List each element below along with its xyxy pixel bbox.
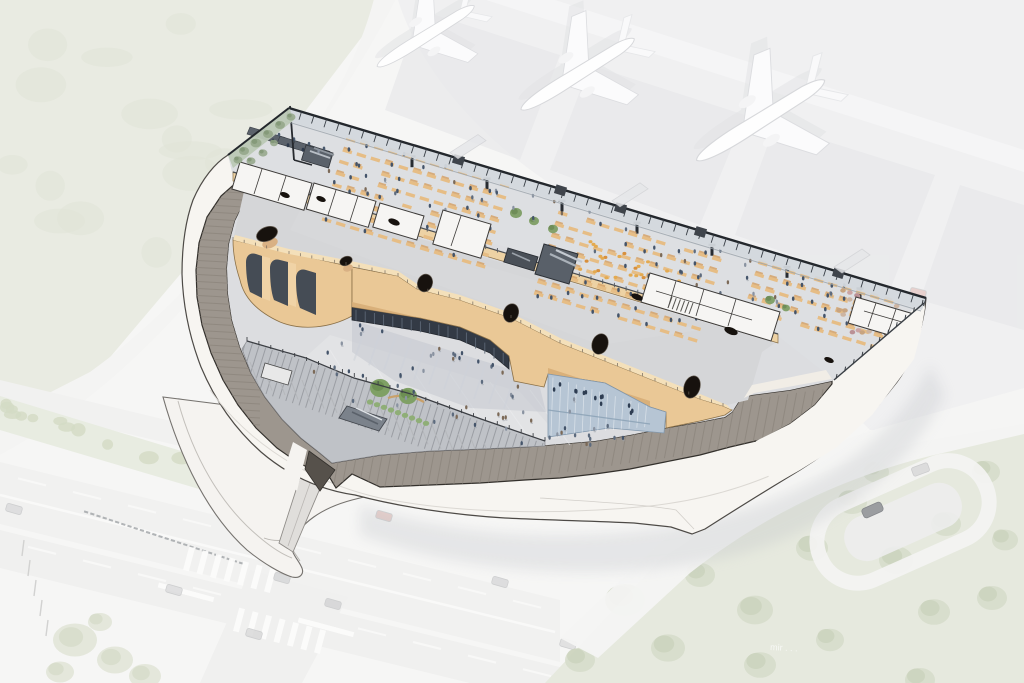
svg-text:mir . . .: mir . . . xyxy=(770,642,798,653)
